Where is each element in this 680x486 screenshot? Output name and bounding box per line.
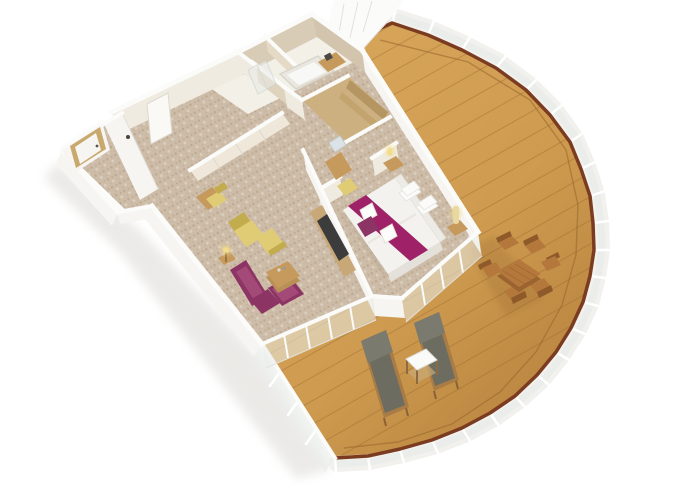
- floorplan-render: Isometric 3D cutaway floor plan of a shi…: [0, 0, 680, 486]
- door-knob: [96, 145, 99, 148]
- wall-fixture: [126, 135, 130, 139]
- suite-floorplan: Isometric 3D cutaway floor plan of a shi…: [0, 0, 680, 486]
